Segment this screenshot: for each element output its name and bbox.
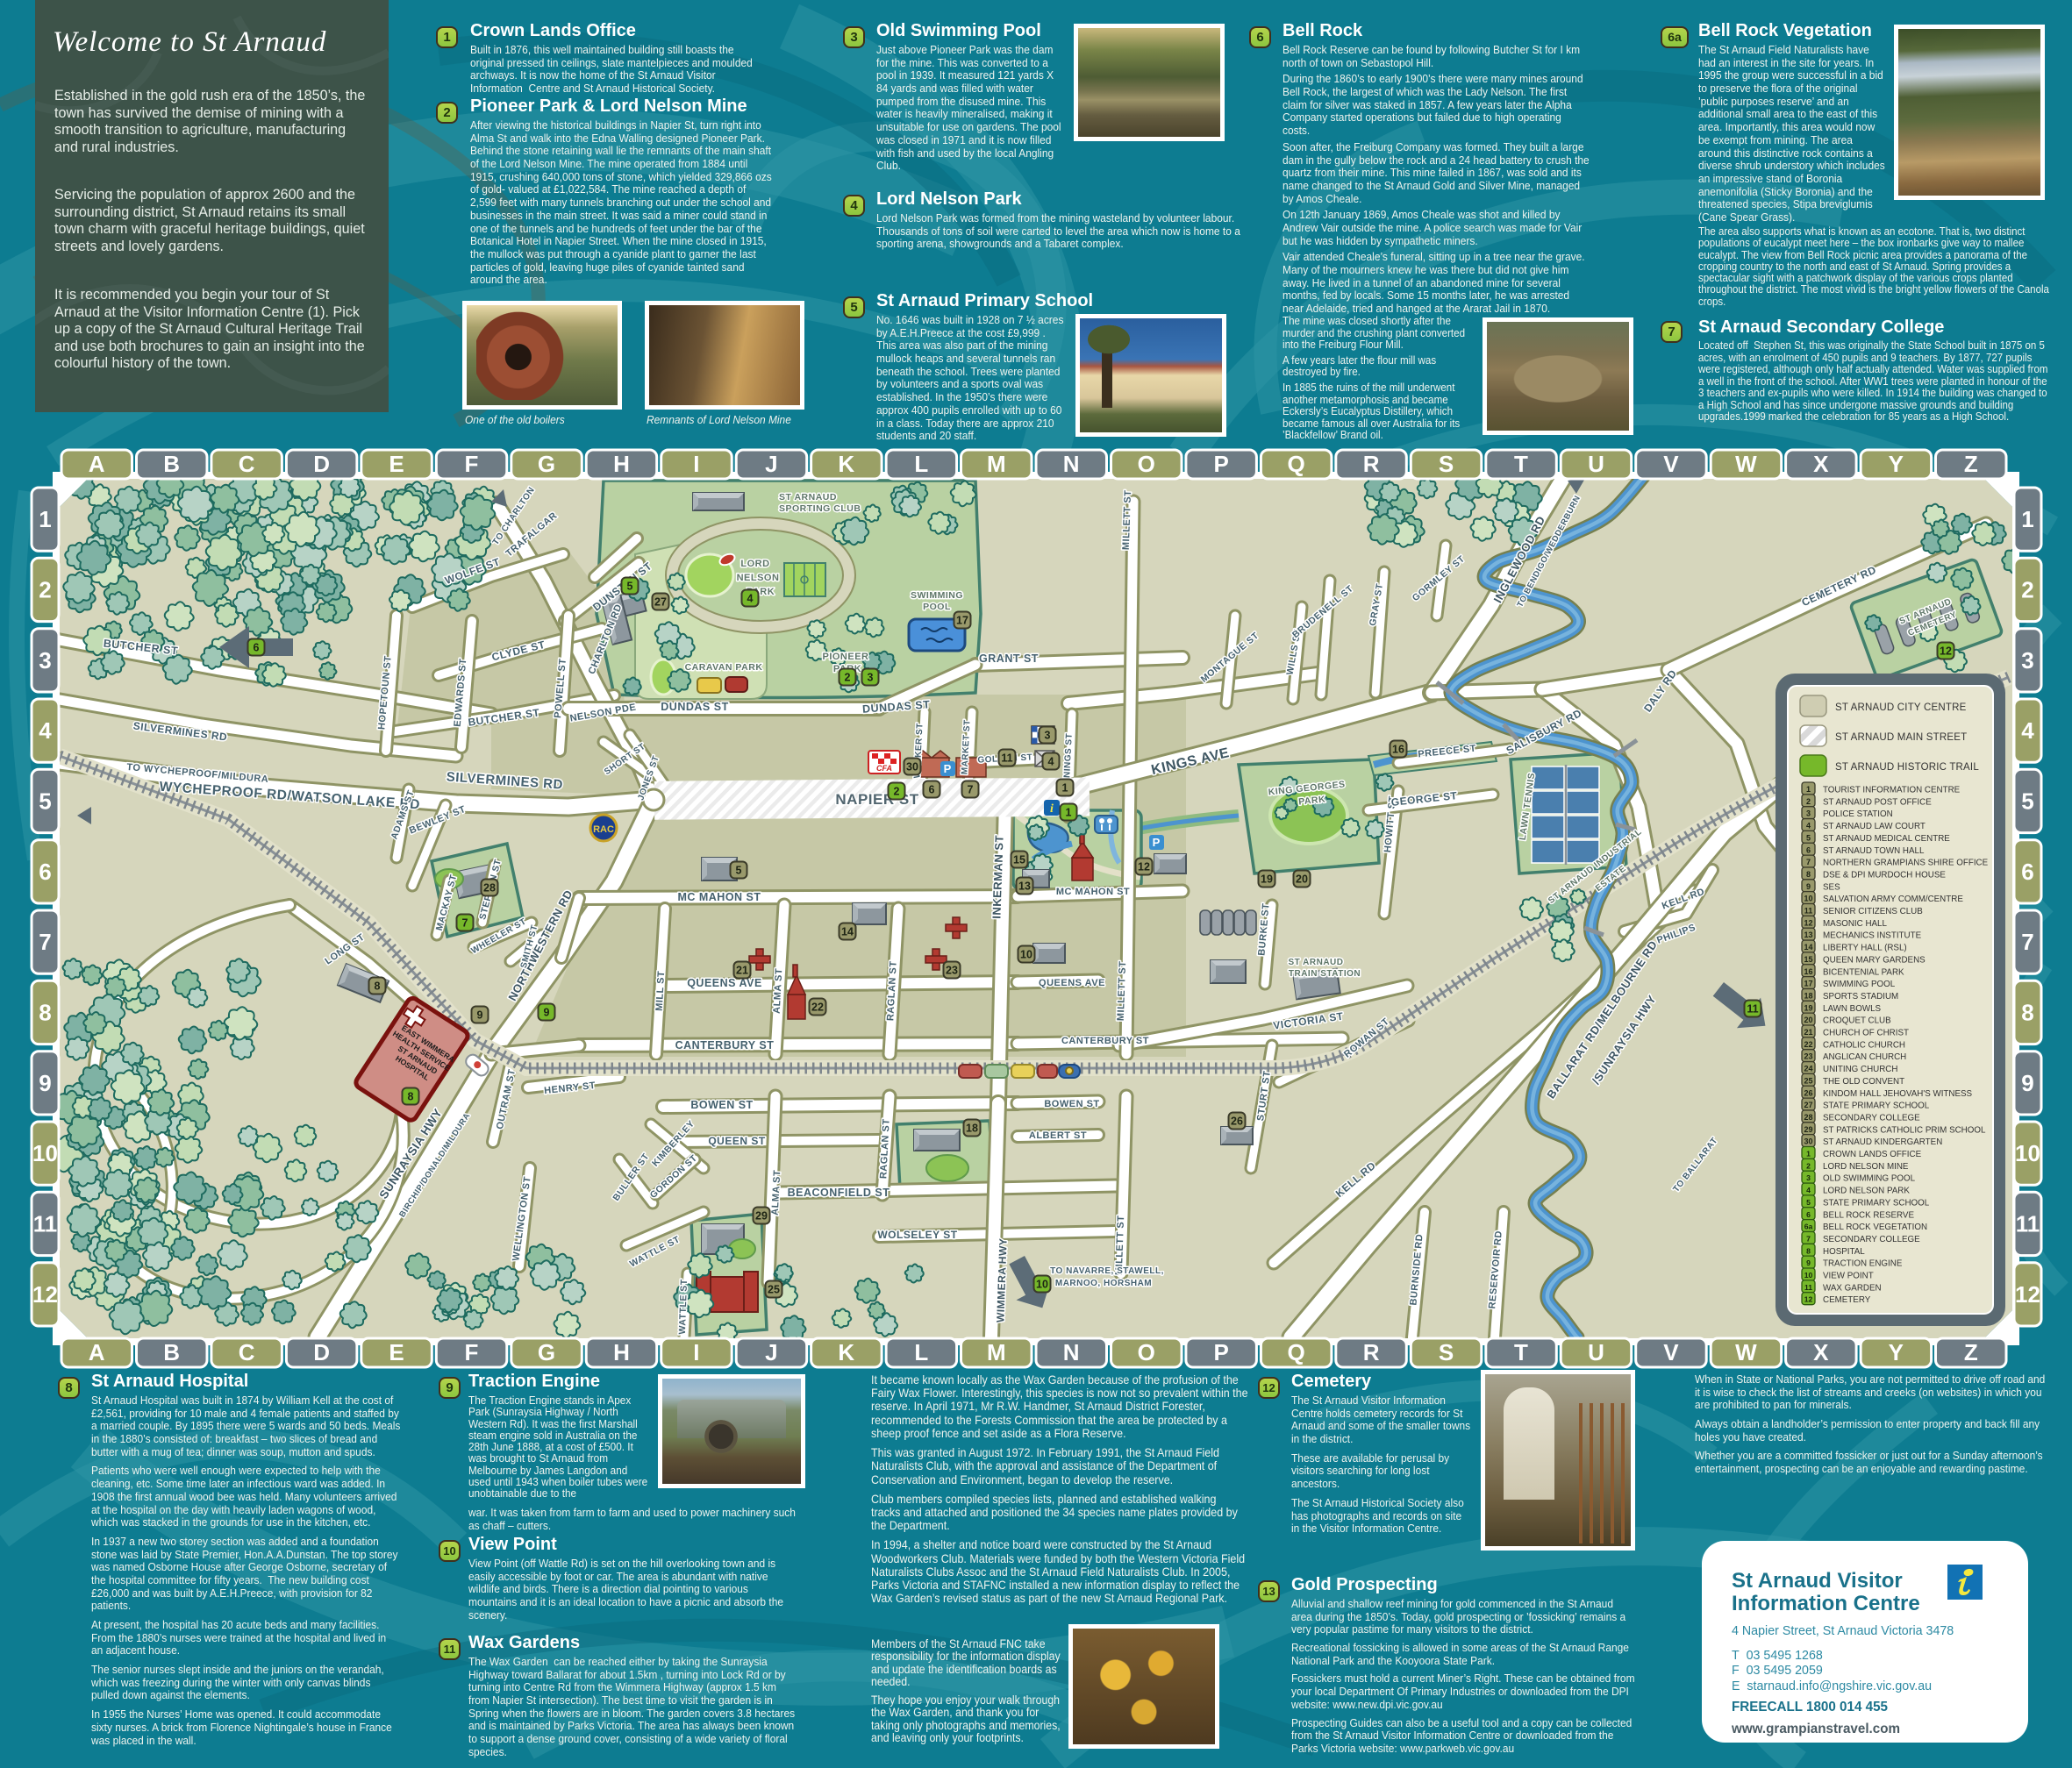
svg-text:CHURCH OF CHRIST: CHURCH OF CHRIST — [1823, 1029, 1909, 1038]
svg-text:ST ARNAUD: ST ARNAUD — [779, 492, 837, 503]
svg-text:D: D — [313, 451, 330, 477]
svg-text:3: 3 — [2021, 647, 2033, 674]
svg-text:3: 3 — [1806, 809, 1811, 818]
svg-text:MARNOO, HORSHAM: MARNOO, HORSHAM — [1055, 1279, 1152, 1288]
svg-text:I: I — [693, 451, 699, 477]
svg-text:6: 6 — [1806, 845, 1811, 854]
svg-text:Z: Z — [1964, 451, 1978, 477]
svg-text:X: X — [1813, 1339, 1829, 1365]
svg-text:CEMETERY: CEMETERY — [1823, 1295, 1871, 1305]
svg-text:19: 19 — [1804, 1003, 1812, 1012]
svg-text:V: V — [1663, 1339, 1679, 1365]
svg-text:24: 24 — [1804, 1065, 1812, 1073]
svg-text:STATE PRIMARY SCHOOL: STATE PRIMARY SCHOOL — [1823, 1198, 1930, 1208]
svg-text:8: 8 — [2021, 1000, 2033, 1026]
svg-text:LIBERTY HALL (RSL): LIBERTY HALL (RSL) — [1823, 944, 1907, 953]
svg-text:U: U — [1588, 1339, 1604, 1365]
svg-text:4: 4 — [1048, 756, 1054, 768]
svg-text:6: 6 — [254, 642, 260, 654]
svg-text:TRAIN STATION: TRAIN STATION — [1289, 969, 1361, 979]
svg-text:7: 7 — [39, 929, 51, 955]
svg-text:E: E — [389, 451, 404, 477]
svg-text:G: G — [538, 1339, 555, 1365]
svg-text:ST ARNAUD KINDERGARTEN: ST ARNAUD KINDERGARTEN — [1823, 1137, 1942, 1147]
svg-text:13: 13 — [1804, 930, 1812, 939]
svg-text:HOSPITAL: HOSPITAL — [1823, 1247, 1865, 1257]
svg-text:27: 27 — [1804, 1101, 1812, 1109]
svg-text:12: 12 — [1138, 861, 1150, 873]
svg-text:LORD NELSON MINE: LORD NELSON MINE — [1823, 1162, 1909, 1172]
svg-text:L: L — [914, 451, 928, 477]
svg-text:7: 7 — [1806, 858, 1811, 866]
svg-text:2: 2 — [2021, 577, 2033, 603]
svg-text:G: G — [538, 451, 555, 477]
svg-text:O: O — [1138, 451, 1155, 477]
svg-text:14: 14 — [1804, 943, 1812, 952]
svg-text:LORD NELSON PARK: LORD NELSON PARK — [1823, 1187, 1910, 1196]
svg-text:7: 7 — [1806, 1234, 1811, 1243]
svg-text:2: 2 — [845, 672, 851, 684]
svg-text:QUEEN MARY GARDENS: QUEEN MARY GARDENS — [1823, 955, 1926, 965]
svg-text:6a: 6a — [1804, 1223, 1813, 1231]
svg-text:SECONDARY COLLEGE: SECONDARY COLLEGE — [1823, 1113, 1920, 1123]
svg-text:30: 30 — [1804, 1137, 1812, 1146]
svg-text:P: P — [1153, 836, 1161, 849]
svg-text:MASONIC HALL: MASONIC HALL — [1823, 919, 1888, 929]
svg-text:W: W — [1735, 1339, 1757, 1365]
svg-text:Q: Q — [1287, 1339, 1304, 1365]
svg-text:3: 3 — [1045, 730, 1051, 742]
svg-text:CROQUET CLUB: CROQUET CLUB — [1823, 1016, 1891, 1026]
svg-text:E: E — [389, 1339, 404, 1365]
svg-text:10: 10 — [1804, 1271, 1813, 1280]
svg-text:9: 9 — [1806, 1258, 1811, 1267]
svg-text:BELL ROCK RESERVE: BELL ROCK RESERVE — [1823, 1210, 1914, 1220]
svg-text:ST ARNAUD LAW COURT: ST ARNAUD LAW COURT — [1823, 822, 1926, 831]
svg-text:1: 1 — [1806, 785, 1811, 794]
svg-text:M: M — [987, 1339, 1006, 1365]
svg-text:12: 12 — [32, 1281, 58, 1308]
svg-text:O: O — [1138, 1339, 1155, 1365]
svg-text:U: U — [1588, 451, 1604, 477]
svg-text:SPORTS STADIUM: SPORTS STADIUM — [1823, 992, 1898, 1002]
svg-text:I: I — [693, 1339, 699, 1365]
svg-text:B: B — [163, 451, 180, 477]
svg-text:11: 11 — [1747, 1003, 1758, 1016]
svg-text:Y: Y — [1889, 451, 1904, 477]
svg-text:5: 5 — [1806, 833, 1811, 842]
svg-text:BELL ROCK VEGETATION: BELL ROCK VEGETATION — [1823, 1223, 1927, 1232]
svg-text:ST ARNAUD: ST ARNAUD — [1288, 958, 1343, 967]
svg-text:B: B — [163, 1339, 180, 1365]
svg-text:9: 9 — [39, 1070, 51, 1096]
svg-text:2: 2 — [1806, 797, 1811, 806]
svg-text:10: 10 — [1804, 895, 1812, 903]
svg-text:H: H — [613, 1339, 630, 1365]
svg-text:Q: Q — [1287, 451, 1304, 477]
svg-text:3: 3 — [39, 647, 51, 674]
svg-text:10: 10 — [1020, 949, 1032, 961]
svg-text:K: K — [838, 1339, 854, 1365]
svg-text:QUEENS AVE: QUEENS AVE — [687, 977, 762, 989]
svg-text:L: L — [914, 1339, 928, 1365]
svg-text:CARAVAN PARK: CARAVAN PARK — [685, 662, 763, 673]
svg-text:5: 5 — [736, 865, 742, 877]
svg-text:6: 6 — [2021, 859, 2033, 885]
svg-text:14: 14 — [841, 926, 854, 938]
svg-text:T: T — [1514, 1339, 1528, 1365]
svg-text:11: 11 — [33, 1211, 58, 1237]
svg-text:12: 12 — [2015, 1281, 2040, 1308]
svg-text:F: F — [465, 451, 479, 477]
svg-text:1: 1 — [1806, 1150, 1811, 1158]
svg-text:6: 6 — [39, 859, 51, 885]
svg-text:N: N — [1063, 1339, 1080, 1365]
svg-text:4: 4 — [39, 717, 52, 744]
svg-text:NELSON: NELSON — [737, 573, 780, 583]
svg-text:CATHOLIC CHURCH: CATHOLIC CHURCH — [1823, 1040, 1905, 1050]
svg-text:QUEEN ST: QUEEN ST — [708, 1135, 766, 1147]
svg-text:1: 1 — [1062, 782, 1068, 795]
svg-text:8: 8 — [375, 980, 381, 993]
svg-text:X: X — [1813, 451, 1829, 477]
svg-text:11: 11 — [1804, 1283, 1812, 1292]
svg-text:18: 18 — [966, 1123, 978, 1135]
svg-text:UNITING CHURCH: UNITING CHURCH — [1823, 1065, 1897, 1074]
svg-text:THE OLD CONVENT: THE OLD CONVENT — [1823, 1077, 1904, 1087]
svg-text:CROWN LANDS OFFICE: CROWN LANDS OFFICE — [1823, 1150, 1922, 1159]
svg-text:NORTHERN GRAMPIANS SHIRE OFFIC: NORTHERN GRAMPIANS SHIRE OFFICE — [1823, 859, 1989, 868]
svg-text:A: A — [89, 1339, 105, 1365]
svg-text:P: P — [1214, 451, 1229, 477]
svg-text:STATE PRIMARY SCHOOL: STATE PRIMARY SCHOOL — [1823, 1101, 1930, 1111]
svg-text:2: 2 — [1806, 1161, 1811, 1170]
svg-text:KINDOM HALL JEHOVAH'S WITNESS: KINDOM HALL JEHOVAH'S WITNESS — [1823, 1089, 1973, 1099]
svg-text:SWIMMING: SWIMMING — [911, 590, 963, 601]
svg-text:J: J — [765, 1339, 777, 1365]
svg-text:8: 8 — [1806, 1246, 1811, 1255]
svg-text:7: 7 — [462, 917, 468, 930]
svg-text:i: i — [1050, 802, 1054, 816]
svg-text:23: 23 — [1804, 1052, 1812, 1061]
svg-text:5: 5 — [627, 581, 633, 593]
svg-text:T: T — [1514, 451, 1528, 477]
svg-text:RAC: RAC — [593, 824, 614, 835]
svg-text:10: 10 — [32, 1140, 58, 1166]
svg-text:BICENTENIAL PARK: BICENTENIAL PARK — [1823, 967, 1904, 977]
svg-text:WATTLE ST: WATTLE ST — [677, 1279, 689, 1335]
svg-text:1: 1 — [2021, 506, 2033, 532]
svg-text:11: 11 — [1804, 907, 1813, 916]
svg-text:C: C — [239, 451, 255, 477]
svg-text:28: 28 — [483, 882, 496, 895]
svg-text:SENIOR CITIZENS CLUB: SENIOR CITIZENS CLUB — [1823, 907, 1923, 916]
svg-text:W: W — [1735, 451, 1757, 477]
svg-text:SWIMMING POOL: SWIMMING POOL — [1823, 980, 1896, 989]
svg-text:6: 6 — [929, 784, 935, 796]
svg-text:29: 29 — [755, 1210, 768, 1223]
svg-text:MILL ST: MILL ST — [654, 971, 667, 1012]
svg-text:17: 17 — [1804, 980, 1812, 988]
svg-text:8: 8 — [1806, 870, 1811, 879]
svg-text:TOURIST INFORMATION CENTRE: TOURIST INFORMATION CENTRE — [1823, 786, 1961, 795]
svg-text:PIONEER: PIONEER — [822, 652, 868, 662]
svg-text:BOWEN ST: BOWEN ST — [1044, 1099, 1099, 1109]
svg-text:NAPIER ST: NAPIER ST — [835, 791, 918, 808]
svg-text:1: 1 — [39, 506, 51, 532]
svg-text:LORD: LORD — [740, 559, 769, 569]
svg-text:19: 19 — [1261, 873, 1273, 886]
svg-text:9: 9 — [477, 1009, 483, 1022]
svg-text:ST ARNAUD HISTORIC TRAIL: ST ARNAUD HISTORIC TRAIL — [1835, 762, 1979, 773]
svg-text:4: 4 — [747, 593, 754, 605]
svg-text:GRANT ST: GRANT ST — [979, 652, 1039, 665]
svg-text:Z: Z — [1964, 1339, 1978, 1365]
svg-text:P: P — [1214, 1339, 1229, 1365]
svg-text:9: 9 — [544, 1007, 550, 1019]
svg-text:ST ARNAUD POST OFFICE: ST ARNAUD POST OFFICE — [1823, 797, 1932, 807]
svg-text:ANGLICAN CHURCH: ANGLICAN CHURCH — [1823, 1052, 1906, 1062]
svg-text:22: 22 — [1804, 1040, 1812, 1049]
svg-text:R: R — [1363, 451, 1380, 477]
svg-text:5: 5 — [1806, 1198, 1811, 1207]
svg-text:3: 3 — [868, 672, 874, 684]
svg-text:ST ARNAUD CITY CENTRE: ST ARNAUD CITY CENTRE — [1835, 702, 1967, 713]
svg-text:6: 6 — [1806, 1210, 1811, 1219]
svg-text:CANTERBURY ST: CANTERBURY ST — [1061, 1036, 1149, 1046]
svg-text:CFA: CFA — [876, 764, 892, 773]
svg-text:22: 22 — [811, 1002, 824, 1014]
svg-text:C: C — [239, 1339, 255, 1365]
svg-text:15: 15 — [1013, 854, 1025, 866]
svg-text:5: 5 — [39, 788, 51, 815]
svg-text:10: 10 — [1036, 1279, 1048, 1291]
svg-text:21: 21 — [1804, 1028, 1812, 1037]
svg-text:TO NAVARRE, STAWELL,: TO NAVARRE, STAWELL, — [1050, 1266, 1164, 1276]
svg-text:29: 29 — [1804, 1125, 1812, 1134]
svg-text:11: 11 — [2016, 1211, 2040, 1237]
svg-text:3: 3 — [1806, 1173, 1811, 1182]
svg-text:S: S — [1439, 451, 1454, 477]
svg-text:LAWN BOWLS: LAWN BOWLS — [1823, 1004, 1882, 1014]
svg-text:POLICE STATION: POLICE STATION — [1823, 809, 1893, 819]
svg-text:MECHANICS INSTITUTE: MECHANICS INSTITUTE — [1823, 931, 1922, 941]
svg-text:WAX GARDEN: WAX GARDEN — [1823, 1283, 1882, 1293]
svg-text:9: 9 — [1806, 882, 1811, 891]
svg-text:MC MAHON ST: MC MAHON ST — [677, 891, 761, 903]
svg-text:7: 7 — [2021, 929, 2033, 955]
svg-text:26: 26 — [1231, 1116, 1243, 1128]
svg-text:TRACTION ENGINE: TRACTION ENGINE — [1823, 1259, 1903, 1269]
svg-text:4: 4 — [1806, 822, 1811, 831]
svg-text:5: 5 — [2021, 788, 2033, 815]
svg-text:N: N — [1063, 451, 1080, 477]
svg-text:30: 30 — [906, 761, 918, 773]
svg-text:8: 8 — [408, 1091, 414, 1103]
svg-text:12: 12 — [1804, 1295, 1813, 1304]
svg-text:25: 25 — [1804, 1076, 1812, 1085]
svg-text:V: V — [1663, 451, 1679, 477]
svg-text:S: S — [1439, 1339, 1454, 1365]
svg-text:A: A — [89, 451, 105, 477]
svg-text:17: 17 — [956, 615, 968, 627]
svg-text:2: 2 — [39, 577, 51, 603]
svg-text:7: 7 — [968, 784, 974, 796]
svg-text:ST ARNAUD TOWN HALL: ST ARNAUD TOWN HALL — [1823, 846, 1925, 856]
svg-text:P: P — [944, 762, 952, 775]
svg-text:16: 16 — [1392, 744, 1404, 756]
svg-text:SPORTING CLUB: SPORTING CLUB — [779, 503, 861, 514]
svg-text:Y: Y — [1889, 1339, 1904, 1365]
svg-text:23: 23 — [946, 965, 958, 977]
svg-text:9: 9 — [2021, 1070, 2033, 1096]
svg-text:20: 20 — [1296, 873, 1308, 886]
svg-text:ST PATRICKS CATHOLIC PRIM SCHO: ST PATRICKS CATHOLIC PRIM SCHOOL — [1823, 1125, 1986, 1135]
svg-text:1: 1 — [1066, 807, 1072, 819]
svg-text:8: 8 — [39, 1000, 51, 1026]
svg-text:MILLETT ST: MILLETT ST — [1121, 489, 1133, 550]
svg-text:BEACONFIELD ST: BEACONFIELD ST — [788, 1187, 890, 1199]
svg-text:13: 13 — [1018, 880, 1031, 893]
svg-text:ST ARNAUD MAIN STREET: ST ARNAUD MAIN STREET — [1835, 732, 1967, 743]
svg-text:21: 21 — [736, 965, 748, 977]
svg-text:R: R — [1363, 1339, 1380, 1365]
svg-text:27: 27 — [654, 596, 667, 609]
svg-text:20: 20 — [1804, 1016, 1812, 1024]
svg-text:DSE & DPI MURDOCH HOUSE: DSE & DPI MURDOCH HOUSE — [1823, 870, 1946, 880]
svg-text:15: 15 — [1804, 955, 1812, 964]
svg-text:SECONDARY COLLEGE: SECONDARY COLLEGE — [1823, 1235, 1920, 1244]
svg-text:4: 4 — [2021, 717, 2034, 744]
svg-text:ST ARNAUD MEDICAL CENTRE: ST ARNAUD MEDICAL CENTRE — [1823, 834, 1950, 844]
svg-text:J: J — [765, 451, 777, 477]
svg-text:2: 2 — [894, 786, 900, 798]
svg-text:CANTERBURY ST: CANTERBURY ST — [675, 1039, 775, 1052]
svg-text:10: 10 — [2015, 1140, 2040, 1166]
svg-text:MC MAHON ST: MC MAHON ST — [1056, 887, 1130, 897]
svg-text:25: 25 — [768, 1284, 780, 1296]
svg-text:SALVATION ARMY COMM/CENTRE: SALVATION ARMY COMM/CENTRE — [1823, 895, 1963, 904]
svg-text:M: M — [987, 451, 1006, 477]
svg-text:ALBERT ST: ALBERT ST — [1029, 1130, 1087, 1141]
svg-text:4: 4 — [1806, 1186, 1811, 1194]
svg-text:12: 12 — [1804, 918, 1812, 927]
svg-text:11: 11 — [1001, 752, 1012, 765]
svg-text:OLD SWIMMING POOL: OLD SWIMMING POOL — [1823, 1174, 1916, 1184]
svg-text:BOWEN ST: BOWEN ST — [690, 1099, 753, 1111]
svg-text:D: D — [313, 1339, 330, 1365]
svg-text:H: H — [613, 451, 630, 477]
svg-text:POOL: POOL — [923, 602, 951, 612]
svg-text:26: 26 — [1804, 1088, 1812, 1097]
svg-text:MILLETT ST: MILLETT ST — [1116, 960, 1128, 1021]
svg-text:18: 18 — [1804, 991, 1812, 1000]
svg-text:12: 12 — [1940, 645, 1952, 658]
svg-text:VIEW POINT: VIEW POINT — [1823, 1272, 1874, 1281]
svg-text:DUNDAS ST: DUNDAS ST — [661, 701, 728, 713]
svg-text:16: 16 — [1804, 967, 1812, 976]
svg-text:SES: SES — [1823, 882, 1840, 892]
svg-text:28: 28 — [1804, 1113, 1812, 1122]
svg-text:F: F — [465, 1339, 479, 1365]
svg-text:K: K — [838, 451, 854, 477]
svg-text:WOLSELEY ST: WOLSELEY ST — [877, 1229, 957, 1241]
svg-text:QUEENS AVE: QUEENS AVE — [1039, 978, 1105, 988]
